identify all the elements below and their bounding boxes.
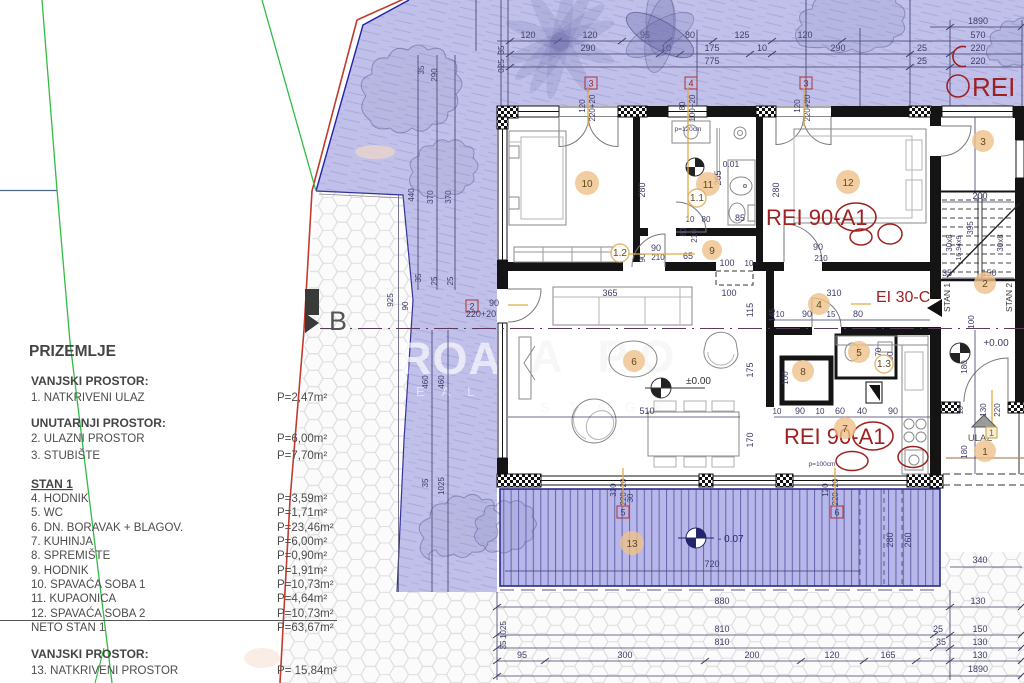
svg-text:1025: 1025 — [437, 477, 446, 495]
svg-text:±0.00: ±0.00 — [686, 376, 711, 387]
svg-text:13. NATKRIVENI PROSTOR: 13. NATKRIVENI PROSTOR — [31, 665, 178, 677]
svg-text:- 0.07: - 0.07 — [718, 534, 744, 545]
svg-text:+0.00: +0.00 — [983, 338, 1009, 349]
svg-text:STAN 1: STAN 1 — [31, 477, 73, 491]
svg-text:80: 80 — [679, 227, 688, 236]
svg-text:35: 35 — [414, 273, 423, 282]
svg-text:510: 510 — [639, 406, 654, 416]
svg-text:80: 80 — [678, 101, 687, 110]
svg-text:2. ULAZNI PROSTOR: 2. ULAZNI PROSTOR — [31, 433, 145, 445]
svg-text:25: 25 — [933, 624, 943, 634]
svg-text:1890: 1890 — [968, 664, 988, 674]
svg-text:120: 120 — [821, 483, 830, 497]
svg-text:120: 120 — [793, 99, 802, 113]
svg-text:130: 130 — [979, 403, 988, 417]
svg-text:300: 300 — [617, 650, 632, 660]
svg-text:200: 200 — [972, 191, 987, 201]
svg-text:35: 35 — [421, 478, 430, 487]
svg-text:11: 11 — [703, 180, 714, 191]
svg-text:P=1,91m²: P=1,91m² — [277, 565, 327, 577]
svg-text:P=10,73m²: P=10,73m² — [277, 579, 334, 591]
svg-text:35: 35 — [499, 640, 508, 649]
svg-text:8. SPREMIŠTE: 8. SPREMIŠTE — [31, 549, 111, 562]
svg-text:10. SPAVAĆA SOBA 1: 10. SPAVAĆA SOBA 1 — [31, 578, 145, 591]
svg-text:8: 8 — [800, 367, 806, 378]
svg-text:1: 1 — [989, 428, 994, 438]
svg-text:5: 5 — [620, 508, 625, 518]
svg-text:90: 90 — [651, 243, 661, 253]
svg-text:280: 280 — [885, 532, 895, 547]
svg-text:1.1: 1.1 — [690, 193, 704, 204]
svg-text:4: 4 — [816, 300, 822, 311]
svg-text:25: 25 — [917, 43, 927, 53]
svg-text:130: 130 — [970, 596, 985, 606]
svg-text:VANJSKI PROSTOR:: VANJSKI PROSTOR: — [31, 647, 149, 661]
svg-text:0.01: 0.01 — [723, 159, 740, 169]
svg-text:REI 90-A1: REI 90-A1 — [766, 205, 868, 230]
svg-text:365: 365 — [602, 288, 617, 298]
svg-text:170: 170 — [745, 432, 755, 447]
svg-text:10: 10 — [773, 407, 782, 416]
svg-text:10: 10 — [686, 215, 695, 224]
svg-text:35: 35 — [942, 268, 952, 278]
svg-text:10: 10 — [581, 179, 593, 190]
svg-text:25: 25 — [446, 276, 455, 285]
svg-text:1.2: 1.2 — [613, 248, 627, 259]
svg-text:P=63,67m²: P=63,67m² — [277, 622, 334, 634]
svg-text:210: 210 — [690, 229, 699, 243]
svg-text:100: 100 — [781, 371, 790, 385]
svg-text:310: 310 — [609, 483, 618, 497]
svg-text:925: 925 — [386, 293, 395, 307]
svg-text:p=100cm: p=100cm — [809, 461, 836, 468]
svg-text:6. DN. BORAVAK + BLAGOV.: 6. DN. BORAVAK + BLAGOV. — [31, 522, 183, 534]
svg-text:1.3: 1.3 — [877, 359, 891, 370]
svg-text:220: 220 — [993, 403, 1002, 417]
svg-text:25: 25 — [430, 276, 439, 285]
svg-text:025: 025 — [497, 59, 506, 73]
svg-text:EI 30-C: EI 30-C — [876, 289, 930, 306]
svg-text:80: 80 — [853, 309, 863, 319]
svg-text:A PO: A PO — [530, 331, 686, 382]
svg-text:P=0,90m²: P=0,90m² — [277, 550, 327, 562]
svg-text:220+20: 220+20 — [466, 309, 496, 319]
svg-text:4: 4 — [688, 79, 693, 89]
svg-text:720: 720 — [704, 559, 719, 569]
svg-text:460: 460 — [437, 375, 446, 389]
svg-text:65: 65 — [683, 251, 693, 261]
svg-text:210: 210 — [814, 254, 828, 263]
svg-text:UNUTARNJI PROSTOR:: UNUTARNJI PROSTOR: — [31, 416, 166, 430]
svg-text:ROA: ROA — [399, 333, 502, 384]
svg-text:10: 10 — [757, 43, 767, 53]
svg-text:30x8: 30x8 — [996, 234, 1005, 252]
svg-text:1890: 1890 — [968, 16, 988, 26]
svg-text:775: 775 — [704, 56, 719, 66]
svg-text:5: 5 — [856, 348, 862, 359]
svg-text:4. HODNIK: 4. HODNIK — [31, 493, 89, 505]
svg-text:P=6,00m²: P=6,00m² — [277, 536, 327, 548]
svg-text:5. WC: 5. WC — [31, 507, 63, 519]
svg-text:9. HODNIK: 9. HODNIK — [31, 565, 89, 577]
svg-text:570: 570 — [970, 30, 985, 40]
svg-text:60: 60 — [835, 406, 845, 416]
svg-text:395: 395 — [966, 221, 975, 235]
svg-text:P=1,71m²: P=1,71m² — [277, 507, 327, 519]
svg-text:16.94x9: 16.94x9 — [956, 235, 963, 260]
svg-text:10: 10 — [816, 407, 825, 416]
svg-text:130: 130 — [972, 650, 987, 660]
svg-text:100: 100 — [719, 258, 734, 268]
svg-text:1: 1 — [982, 447, 988, 458]
svg-text:6: 6 — [631, 357, 637, 368]
svg-text:90: 90 — [795, 406, 805, 416]
svg-text:2: 2 — [982, 279, 988, 290]
svg-text:P=2,47m²: P=2,47m² — [277, 392, 327, 404]
svg-text:180: 180 — [960, 360, 969, 374]
svg-text:B: B — [329, 306, 347, 336]
svg-text:VANJSKI PROSTOR:: VANJSKI PROSTOR: — [31, 374, 149, 388]
svg-text:280: 280 — [771, 182, 781, 197]
svg-text:1025: 1025 — [499, 621, 508, 639]
svg-text:P= 15,84m²: P= 15,84m² — [277, 665, 337, 677]
svg-text:35: 35 — [497, 45, 506, 54]
svg-text:810: 810 — [714, 624, 729, 634]
svg-text:180: 180 — [960, 445, 969, 459]
svg-text:7. KUHINJA: 7. KUHINJA — [31, 536, 93, 548]
svg-text:85: 85 — [735, 213, 745, 223]
svg-text:340: 340 — [972, 555, 987, 565]
svg-text:115: 115 — [745, 303, 755, 317]
svg-text:P=7,70m²: P=7,70m² — [277, 450, 327, 462]
svg-text:30x8: 30x8 — [945, 234, 954, 252]
svg-text:P=3,59m²: P=3,59m² — [277, 493, 327, 505]
svg-text:260: 260 — [903, 532, 913, 547]
svg-text:310: 310 — [826, 288, 841, 298]
svg-text:1. NATKRIVENI ULAZ: 1. NATKRIVENI ULAZ — [31, 392, 145, 404]
svg-text:3: 3 — [980, 137, 986, 148]
svg-text:11. KUPAONICA: 11. KUPAONICA — [31, 593, 117, 605]
svg-text:125: 125 — [734, 30, 749, 40]
svg-text:120: 120 — [824, 650, 839, 660]
svg-text:95: 95 — [517, 650, 527, 660]
svg-text:REI: REI — [972, 72, 1015, 102]
svg-text:165: 165 — [880, 650, 895, 660]
svg-text:130: 130 — [972, 637, 987, 647]
svg-text:200: 200 — [744, 650, 759, 660]
svg-text:90: 90 — [888, 406, 898, 416]
svg-text:220: 220 — [970, 43, 985, 53]
svg-text:280: 280 — [637, 182, 647, 197]
svg-text:145: 145 — [768, 308, 777, 322]
svg-text:40: 40 — [857, 406, 867, 416]
svg-text:3. STUBIŠTE: 3. STUBIŠTE — [31, 449, 100, 462]
svg-text:3: 3 — [803, 79, 808, 89]
svg-text:175: 175 — [704, 43, 719, 53]
svg-text:6: 6 — [834, 508, 839, 518]
svg-text:15: 15 — [827, 310, 836, 319]
svg-text:20: 20 — [958, 406, 965, 414]
svg-text:150: 150 — [972, 624, 987, 634]
svg-text:120: 120 — [578, 99, 587, 113]
svg-text:13: 13 — [626, 539, 638, 550]
svg-text:100: 100 — [967, 315, 976, 329]
svg-text:100+20: 100+20 — [688, 94, 697, 121]
svg-text:STAN 1: STAN 1 — [942, 283, 952, 312]
svg-text:25: 25 — [917, 56, 927, 66]
svg-text:90: 90 — [489, 298, 499, 308]
svg-text:P=23,46m²: P=23,46m² — [277, 522, 334, 534]
svg-text:220: 220 — [970, 56, 985, 66]
svg-text:810: 810 — [714, 637, 729, 647]
svg-text:90: 90 — [401, 301, 410, 310]
svg-text:PRIZEMLJE: PRIZEMLJE — [29, 343, 116, 360]
svg-text:90: 90 — [813, 242, 823, 252]
svg-text:220+20: 220+20 — [588, 94, 597, 121]
svg-text:P=4,64m²: P=4,64m² — [277, 593, 327, 605]
svg-text:10: 10 — [745, 259, 754, 268]
svg-text:460: 460 — [421, 375, 430, 389]
svg-text:80: 80 — [702, 215, 711, 224]
svg-text:12. SPAVAĆA SOBA 2: 12. SPAVAĆA SOBA 2 — [31, 607, 145, 620]
svg-text:880: 880 — [714, 596, 729, 606]
svg-text:STAN 2: STAN 2 — [1004, 283, 1014, 312]
svg-text:100: 100 — [721, 288, 736, 298]
svg-text:12: 12 — [842, 178, 854, 189]
svg-text:P=10,73m²: P=10,73m² — [277, 608, 334, 620]
svg-text:175: 175 — [745, 362, 755, 377]
svg-text:7: 7 — [842, 424, 848, 435]
svg-text:NETO STAN 1: NETO STAN 1 — [31, 622, 105, 634]
svg-text:9: 9 — [709, 246, 715, 257]
svg-text:P=6,00m²: P=6,00m² — [277, 433, 327, 445]
svg-text:35: 35 — [936, 637, 946, 647]
